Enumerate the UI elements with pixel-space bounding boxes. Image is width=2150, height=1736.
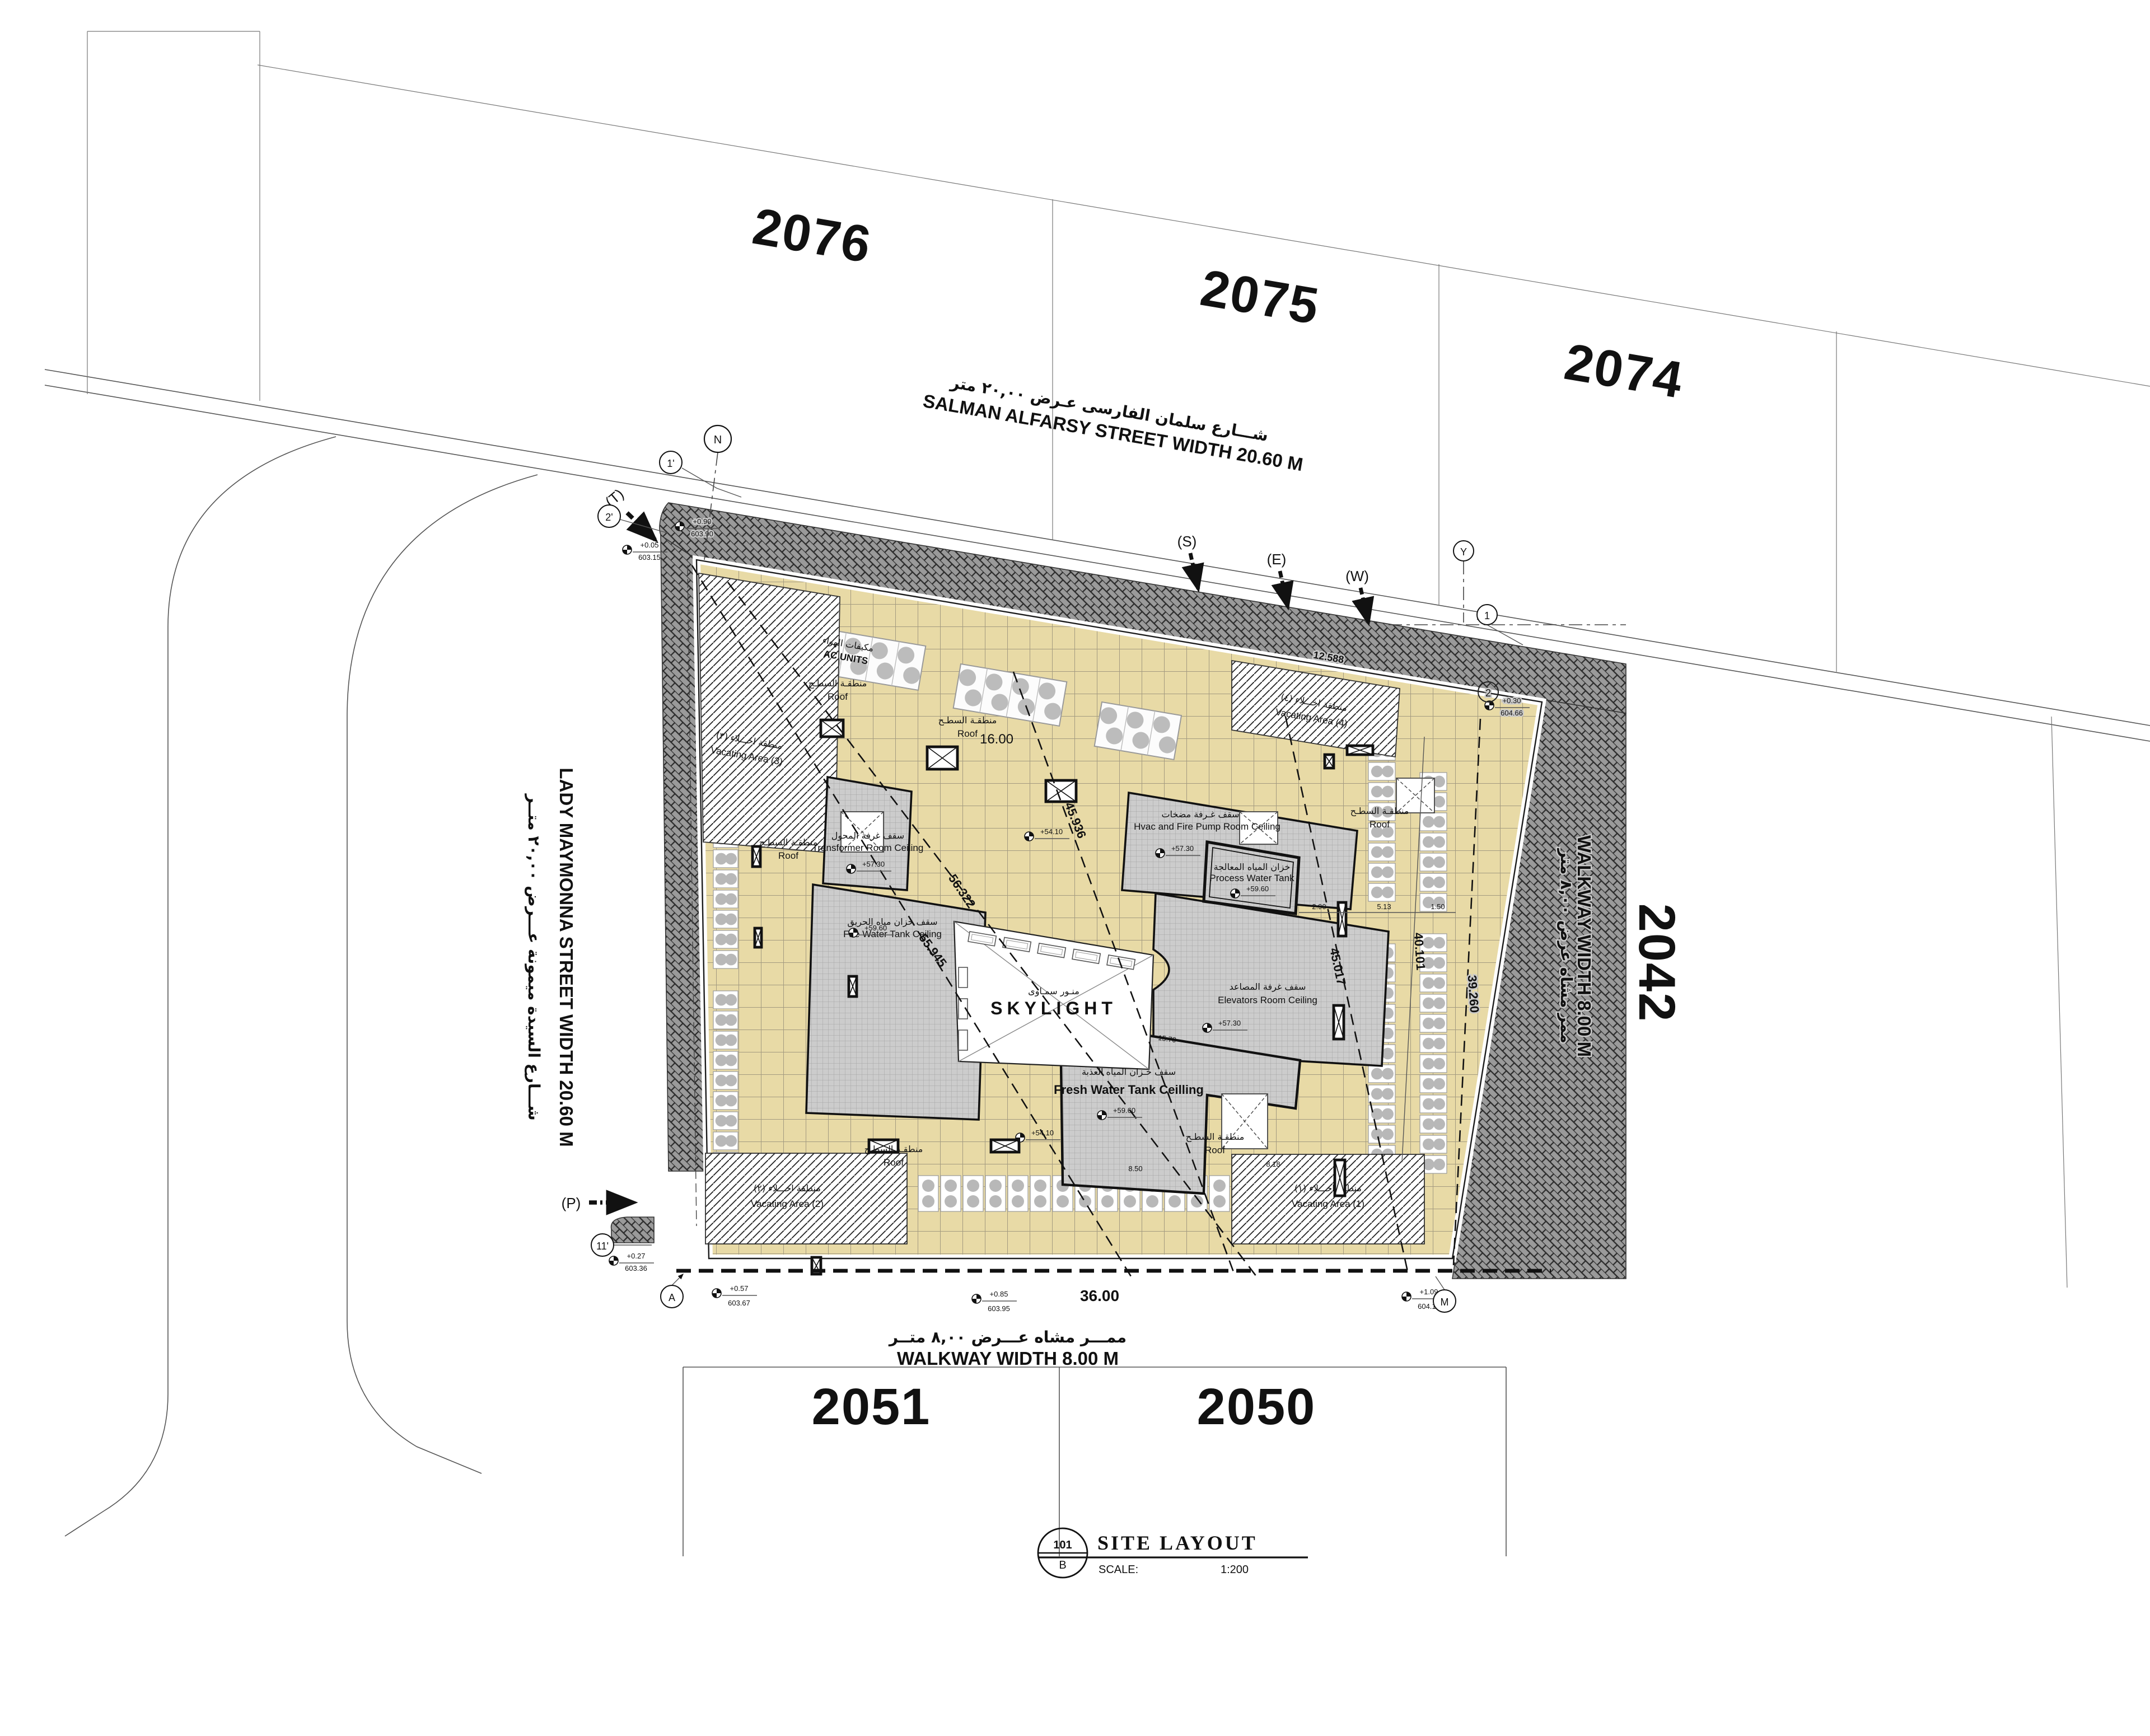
roof-label-ar: منطقـة السطـح bbox=[759, 837, 818, 848]
tree-icon bbox=[1012, 1180, 1024, 1192]
vacating-area-2-label-ar: منطقة اخـــلاء (٢) bbox=[754, 1183, 821, 1194]
tree-icon bbox=[967, 1180, 979, 1192]
tree-icon bbox=[1433, 977, 1445, 989]
walkway-corner-patch bbox=[611, 1217, 654, 1243]
process-label-en: Process Water Tank bbox=[1209, 873, 1294, 883]
tree-icon bbox=[1423, 977, 1434, 989]
vacating-area-3 bbox=[699, 573, 840, 853]
roof-hatch-icon bbox=[1338, 902, 1346, 936]
level-roof-b: +54.10 bbox=[1031, 1129, 1054, 1137]
tree-icon bbox=[1382, 846, 1394, 858]
tree-icon bbox=[1433, 816, 1445, 828]
tree-icon bbox=[1423, 816, 1434, 828]
tree-icon bbox=[1371, 887, 1383, 899]
freshwater-label-en: Fresh Water Tank Ceilling bbox=[1054, 1083, 1204, 1097]
tree-icon bbox=[1371, 867, 1383, 878]
plot-top-boundary-line bbox=[258, 65, 2150, 386]
walkway-right-label-en: WALKWAY WIDTH 8.00 M bbox=[1574, 835, 1595, 1057]
tree-icon bbox=[1371, 786, 1383, 798]
roof-label-en: Roof bbox=[1370, 819, 1390, 830]
vacating-area-2-label-en: Vacating Area (2) bbox=[751, 1199, 824, 1209]
tree-icon bbox=[725, 893, 737, 905]
level-elevators: +57.30 bbox=[1218, 1019, 1241, 1027]
tree-icon bbox=[1382, 1088, 1394, 1100]
roof-hatch-icon bbox=[1335, 1160, 1345, 1196]
walkway-right-label-ar: ممر مشاه عرض ٨,٠٠ متر bbox=[1557, 848, 1576, 1044]
plot-number-2051: 2051 bbox=[812, 1378, 931, 1435]
tree-icon bbox=[1423, 1139, 1434, 1150]
marker-p: (P) bbox=[562, 1195, 581, 1211]
tree-icon bbox=[1382, 1048, 1394, 1060]
tree-icon bbox=[1371, 1068, 1383, 1080]
plot-number-2076: 2076 bbox=[749, 198, 876, 274]
roof-hatch-icon bbox=[1325, 755, 1334, 768]
vacating-area-1-label-en: Vacating Area (1) bbox=[1292, 1199, 1364, 1209]
dim-150: 1.50 bbox=[1431, 902, 1445, 911]
marker-e: (E) bbox=[1267, 551, 1287, 568]
tree-icon bbox=[1382, 867, 1394, 878]
tree-icon bbox=[725, 914, 737, 925]
plot-corner-lines bbox=[87, 31, 260, 401]
tree-icon bbox=[725, 1095, 737, 1107]
skylight-panel-icon bbox=[959, 1030, 968, 1050]
tree-icon bbox=[1382, 786, 1394, 798]
tree-icon bbox=[725, 1055, 737, 1066]
elevators-label-ar: سقف غرفة المصاعد bbox=[1230, 981, 1306, 993]
skylight-label-en: SKYLIGHT bbox=[990, 998, 1117, 1018]
plot-number-2050: 2050 bbox=[1197, 1378, 1316, 1435]
tree-icon bbox=[1124, 1195, 1136, 1208]
roof-hatch-icon bbox=[752, 846, 760, 867]
dim-39260: 39.260 bbox=[1465, 975, 1482, 1013]
bubble-m: M bbox=[1441, 1297, 1449, 1308]
tree-icon bbox=[1433, 1098, 1445, 1110]
plot-number-2042: 2042 bbox=[1628, 904, 1685, 1023]
tree-icon bbox=[1034, 1195, 1046, 1208]
marker-t-arrow bbox=[627, 513, 655, 540]
spot-value: +0.27 bbox=[627, 1252, 646, 1260]
walkway-bottom-label-en: WALKWAY WIDTH 8.00 M bbox=[897, 1348, 1119, 1369]
roof-hatch-icon bbox=[1334, 1005, 1344, 1039]
tree-icon bbox=[1371, 846, 1383, 858]
roof-hatch-icon bbox=[1347, 746, 1373, 755]
bottom-plot-lines bbox=[683, 1367, 1506, 1556]
plot-number-2075: 2075 bbox=[1196, 259, 1324, 335]
site-layout-drawing: 2076 2075 2074 2042 2051 2050 شـــارع سل… bbox=[0, 0, 2150, 1735]
spot-value: +0.30 bbox=[1503, 696, 1521, 705]
roof-label-en: Roof bbox=[957, 728, 978, 739]
tree-icon bbox=[725, 1035, 737, 1046]
roof-label-ar: منطقـة السطـح bbox=[1350, 806, 1409, 817]
tree-icon bbox=[1423, 1119, 1434, 1130]
tree-icon bbox=[1433, 1078, 1445, 1090]
level-transformer: +57.30 bbox=[862, 860, 885, 868]
dim-290: 2.90 bbox=[1312, 902, 1326, 911]
plot-2042-boundary-line bbox=[2051, 717, 2067, 1288]
tree-icon bbox=[1433, 1139, 1445, 1150]
roof-label-ar: منطقـة السطـح bbox=[1186, 1131, 1245, 1143]
tree-icon bbox=[1101, 1195, 1114, 1208]
tree-icon bbox=[1146, 1195, 1158, 1208]
maymonna-street-label-ar: شـــارع السيدة ميمونة عـــرض ٢٠,٠٠ متــر bbox=[525, 793, 543, 1120]
tree-icon bbox=[1191, 1195, 1203, 1208]
tree-icon bbox=[1423, 1098, 1434, 1110]
process-label-ar: خزان المياه المعالجة bbox=[1214, 862, 1291, 873]
tree-icon bbox=[1423, 857, 1434, 868]
roof-label-ar: منطقـة السطـح bbox=[808, 678, 867, 689]
level-hvac: +57.30 bbox=[1171, 844, 1194, 853]
tree-icon bbox=[1423, 877, 1434, 888]
tree-icon bbox=[1433, 1058, 1445, 1070]
roof-hatch-icon bbox=[849, 976, 857, 996]
maymonna-street-label-en: LADY MAYMONNA STREET WIDTH 20.60 M bbox=[556, 768, 577, 1147]
tree-icon bbox=[1034, 1180, 1046, 1192]
leader-a bbox=[672, 1274, 683, 1285]
tree-icon bbox=[1433, 836, 1445, 848]
tree-icon bbox=[1382, 1068, 1394, 1080]
dim-513: 5.13 bbox=[1377, 902, 1391, 911]
roof-label-en: Roof bbox=[884, 1157, 904, 1168]
tree-icon bbox=[1433, 937, 1445, 949]
dim-818: 8.18 bbox=[1266, 1160, 1280, 1168]
tree-icon bbox=[1382, 766, 1394, 778]
level-freshwater: +59.60 bbox=[1113, 1106, 1135, 1115]
level-process: +59.60 bbox=[1246, 885, 1269, 893]
transformer-label-ar: سقف غرفة المحول bbox=[831, 830, 904, 841]
roof-hatch-icon bbox=[927, 747, 957, 769]
tree-icon bbox=[1382, 887, 1394, 899]
tree-icon bbox=[725, 934, 737, 946]
site-plan-canvas: 2076 2075 2074 2042 2051 2050 شـــارع سل… bbox=[0, 0, 2150, 1735]
roof-label-ar: منطقـة السطـح bbox=[938, 715, 997, 726]
scale-label: SCALE: bbox=[1099, 1564, 1138, 1576]
hvac-label-en: Hvac and Fire Pump Room Ceiling bbox=[1134, 821, 1280, 832]
plot-number-2074: 2074 bbox=[1560, 333, 1688, 409]
tree-icon bbox=[725, 1115, 737, 1127]
tree-icon bbox=[1433, 877, 1445, 888]
bubble-1: 1 bbox=[1484, 610, 1490, 621]
spot-value: +0.57 bbox=[730, 1284, 749, 1293]
roof-label-en: Roof bbox=[778, 850, 798, 861]
tree-icon bbox=[1433, 857, 1445, 868]
tree-icon bbox=[1012, 1195, 1024, 1208]
tree-icon bbox=[725, 1014, 737, 1026]
bubble-2: 2 bbox=[1485, 687, 1491, 699]
dim-16: 16.00 bbox=[980, 732, 1013, 747]
drawing-number: 101 bbox=[1053, 1539, 1072, 1551]
tree-icon bbox=[1169, 1195, 1181, 1208]
dim-850: 8.50 bbox=[1128, 1164, 1142, 1173]
tree-icon bbox=[1433, 1119, 1445, 1130]
tree-icon bbox=[1433, 1018, 1445, 1030]
tree-icon bbox=[1382, 1108, 1394, 1120]
roof-hatch-icon bbox=[991, 1140, 1019, 1152]
roof-label-ar: منطقـة السطـح bbox=[864, 1144, 923, 1155]
tree-icon bbox=[945, 1180, 957, 1192]
tree-icon bbox=[1423, 998, 1434, 1009]
drawing-title: SITE LAYOUT bbox=[1097, 1532, 1258, 1554]
hvac-label-ar: سقف غـرفة مضخات bbox=[1161, 809, 1239, 820]
tree-icon bbox=[989, 1180, 1002, 1192]
tree-icon bbox=[1371, 1129, 1383, 1140]
left-road-outer-edge bbox=[65, 437, 336, 1536]
tree-icon bbox=[989, 1195, 1002, 1208]
tree-icon bbox=[1423, 1058, 1434, 1070]
marker-s-arrow bbox=[1190, 553, 1198, 589]
spot-datum: 603.36 bbox=[625, 1264, 647, 1272]
tree-icon bbox=[1423, 1078, 1434, 1090]
tree-icon bbox=[922, 1195, 934, 1208]
vacating-area-1-label-ar: منطقة اخـــلاء (١) bbox=[1294, 1183, 1362, 1194]
tree-icon bbox=[1371, 1088, 1383, 1100]
spot-datum: 604.66 bbox=[1501, 709, 1523, 717]
tree-icon bbox=[1423, 1038, 1434, 1050]
marker-s: (S) bbox=[1177, 533, 1197, 550]
bubble-11p: 11' bbox=[596, 1241, 609, 1252]
tree-icon bbox=[725, 994, 737, 1006]
tree-icon bbox=[1423, 836, 1434, 848]
bubble-2p: 2' bbox=[605, 512, 613, 523]
dim-40101: 40.101 bbox=[1411, 932, 1428, 971]
level-roof-a: +54.10 bbox=[1040, 827, 1063, 836]
tree-icon bbox=[1371, 766, 1383, 778]
bubble-n: N bbox=[714, 434, 722, 446]
transformer-label-en: Transformer Room Ceiling bbox=[812, 843, 924, 853]
tree-icon bbox=[725, 853, 737, 865]
tree-icon bbox=[725, 1075, 737, 1087]
firewater-label-ar: سقف خزان مياه الحريق bbox=[847, 916, 937, 928]
spot-datum: 603.95 bbox=[988, 1304, 1010, 1313]
walkway-bottom-label-ar: ممـــر مشاه عـــرض ٨,٠٠ متــر bbox=[888, 1328, 1127, 1346]
tree-icon bbox=[725, 873, 737, 885]
tree-icon bbox=[1433, 796, 1445, 808]
bubble-1p: 1' bbox=[667, 458, 674, 469]
spot-datum: 603.15 bbox=[638, 553, 661, 561]
tree-icon bbox=[1433, 957, 1445, 969]
left-road-inner-edge bbox=[347, 475, 537, 1473]
spot-value: +0.05 bbox=[641, 541, 659, 549]
tree-icon bbox=[725, 1135, 737, 1147]
marker-w: (W) bbox=[1345, 568, 1369, 584]
tree-icon bbox=[1423, 1018, 1434, 1030]
tree-icon bbox=[1433, 776, 1445, 788]
spot-datum: 603.90 bbox=[691, 530, 713, 538]
tree-icon bbox=[1433, 1159, 1445, 1171]
tree-icon bbox=[725, 954, 737, 966]
tree-icon bbox=[967, 1195, 979, 1208]
marker-e-arrow bbox=[1280, 571, 1288, 607]
drawing-revision: B bbox=[1059, 1559, 1066, 1571]
tree-icon bbox=[1433, 998, 1445, 1009]
spot-value: +0.85 bbox=[990, 1290, 1008, 1298]
level-firewater: +59.60 bbox=[864, 924, 887, 932]
roof-hatch-icon bbox=[755, 928, 761, 947]
tree-icon bbox=[1057, 1195, 1069, 1208]
dim-36: 36.00 bbox=[1080, 1287, 1119, 1304]
elevators-label-en: Elevators Room Ceiling bbox=[1218, 995, 1317, 1005]
scale-value: 1:200 bbox=[1221, 1564, 1249, 1576]
tree-icon bbox=[1079, 1195, 1091, 1208]
tree-icon bbox=[922, 1180, 934, 1192]
roof-hatch-icon bbox=[1046, 780, 1076, 802]
tree-icon bbox=[1382, 1129, 1394, 1140]
bubble-a: A bbox=[669, 1292, 675, 1303]
roof-label-en: Roof bbox=[1205, 1145, 1225, 1155]
roof-label-en: Roof bbox=[828, 691, 848, 702]
title-block: 101 B SITE LAYOUT SCALE: 1:200 bbox=[1038, 1528, 1308, 1578]
tree-icon bbox=[1213, 1195, 1226, 1208]
bubble-y: Y bbox=[1460, 546, 1467, 558]
tree-icon bbox=[1213, 1180, 1226, 1192]
skylight-panel-icon bbox=[959, 967, 968, 988]
spot-datum: 603.67 bbox=[728, 1299, 750, 1307]
tree-icon bbox=[1433, 1038, 1445, 1050]
tree-icon bbox=[945, 1195, 957, 1208]
tree-icon bbox=[1371, 1108, 1383, 1120]
